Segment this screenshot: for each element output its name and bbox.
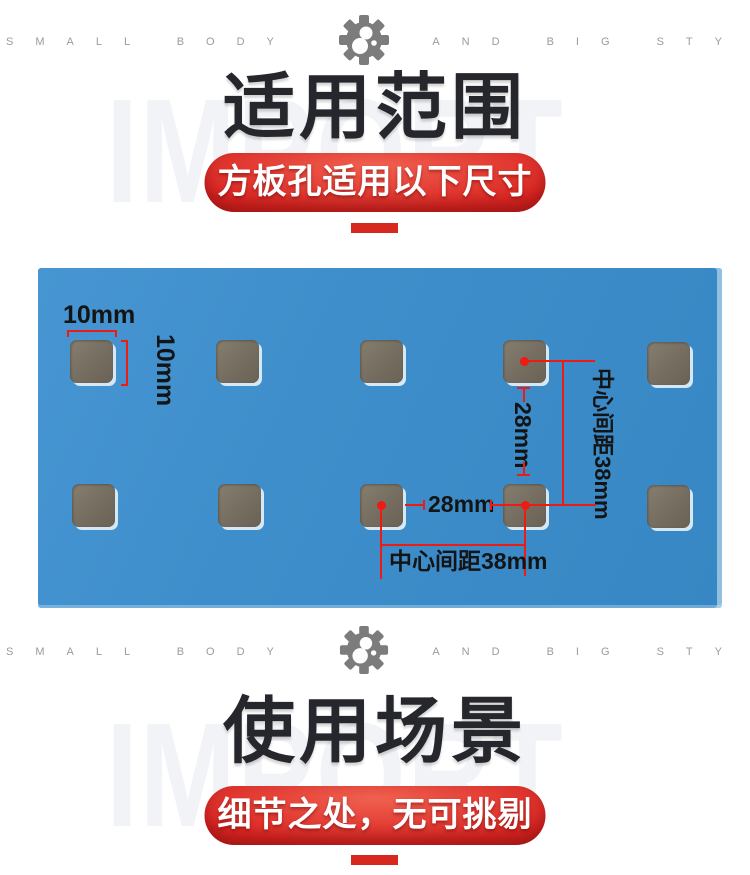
section-title-usage: 使用场景 bbox=[0, 696, 750, 768]
divider-bar-top bbox=[351, 223, 398, 233]
pegboard-hole bbox=[647, 485, 690, 528]
dim-line bbox=[492, 504, 526, 506]
leader-line bbox=[525, 360, 595, 362]
banner-range: 方板孔适用以下尺寸 bbox=[205, 153, 546, 212]
pegboard-hole bbox=[647, 342, 690, 385]
dim-line bbox=[523, 389, 525, 402]
tagline-left-text: SMALL BODY bbox=[6, 36, 296, 48]
banner-usage: 细节之处，无可挑剔 bbox=[205, 786, 546, 845]
hole-width-bracket bbox=[67, 330, 117, 337]
horizontal-center-distance-label: 中心间距38mm bbox=[389, 549, 547, 574]
vertical-center-distance-label: 中心间距38mm bbox=[590, 368, 614, 520]
horizontal-gap-label: 28mm bbox=[428, 492, 494, 517]
tagline-left-text: SMALL BODY bbox=[6, 646, 296, 658]
drop-line-left bbox=[380, 505, 382, 579]
pegboard-hole bbox=[216, 340, 259, 383]
product-detail-page: SMALL BODY bbox=[0, 0, 750, 875]
pegboard-hole bbox=[218, 484, 261, 527]
tagline-strip-top: SMALL BODY bbox=[0, 14, 750, 70]
dim-tick bbox=[423, 500, 425, 510]
divider-bar-bottom bbox=[351, 855, 398, 865]
hole-height-label: 10mm bbox=[151, 334, 179, 406]
tagline-right-text: AND BIG STY bbox=[432, 646, 744, 658]
pegboard-hole bbox=[72, 484, 115, 527]
gear-icon bbox=[338, 14, 390, 71]
pegboard-hole bbox=[360, 340, 403, 383]
pegboard-hole bbox=[70, 340, 113, 383]
vertical-gap-label: 28mm bbox=[510, 402, 535, 468]
section-title-range: 适用范围 bbox=[0, 72, 750, 144]
gear-icon bbox=[339, 625, 389, 680]
connector-line bbox=[380, 544, 526, 546]
dim-line bbox=[405, 504, 423, 506]
center-distance-vline bbox=[562, 361, 564, 505]
hole-width-label: 10mm bbox=[63, 302, 135, 330]
leader-line bbox=[525, 504, 596, 506]
hole-height-bracket bbox=[121, 340, 128, 386]
tagline-strip-bottom: SMALL BODY bbox=[0, 624, 750, 680]
pegboard-image: 10mm 10mm 中心间距38mm 28mm 28mm 中心间距38mm bbox=[38, 268, 722, 608]
dim-tick bbox=[517, 474, 530, 476]
tagline-right-text: AND BIG STY bbox=[432, 36, 744, 48]
